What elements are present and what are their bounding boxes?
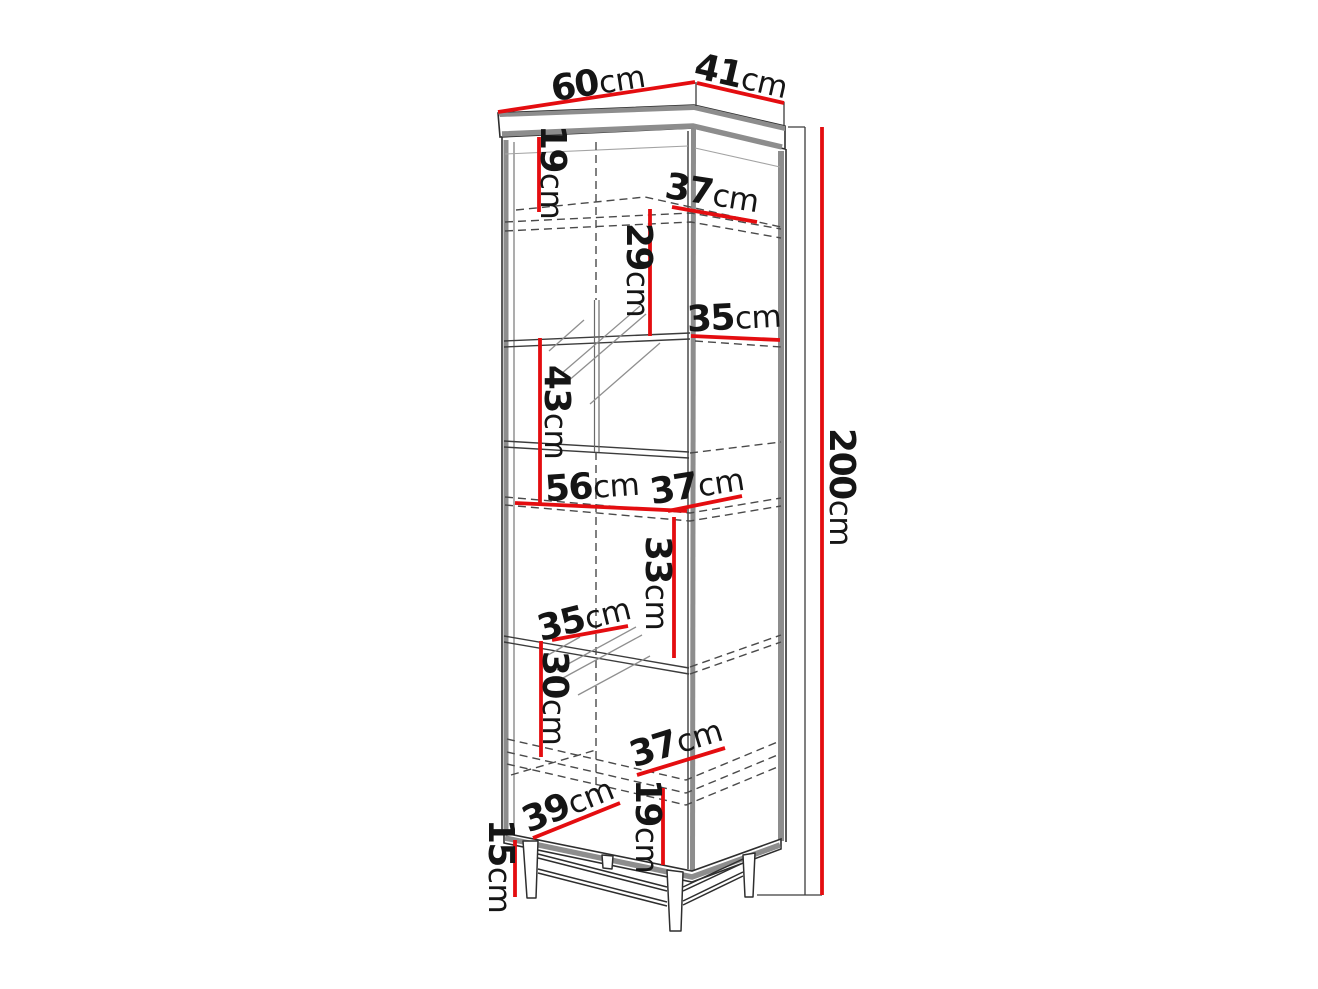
dim-value: 43 xyxy=(536,365,577,412)
dim-label-leg-height: 15cm xyxy=(482,819,518,913)
dim-value: 30 xyxy=(534,651,575,698)
dim-label-lower-section-height: 30cm xyxy=(536,651,572,745)
dim-value: 15 xyxy=(480,819,521,866)
dim-unit: cm xyxy=(535,699,571,745)
dim-unit: cm xyxy=(533,173,569,219)
dim-unit: cm xyxy=(734,299,782,337)
dim-unit: cm xyxy=(638,584,674,630)
dim-unit: cm xyxy=(822,500,858,546)
dim-label-middle-shelf-width: 56cm xyxy=(544,466,641,508)
dim-value: 29 xyxy=(618,223,659,270)
dim-unit: cm xyxy=(628,827,664,873)
dim-unit: cm xyxy=(710,177,761,220)
dim-label-display-section-height: 43cm xyxy=(538,365,574,459)
front-center-leg xyxy=(667,870,683,931)
dim-unit: cm xyxy=(695,462,746,505)
dim-label-total-height: 200cm xyxy=(823,428,859,546)
dim-value: 35 xyxy=(686,297,735,340)
dim-unit: cm xyxy=(619,271,655,317)
dim-label-glass-shelf-depth: 35cm xyxy=(686,298,782,339)
dim-label-bottom-section-height: 19cm xyxy=(629,779,665,873)
right-leg xyxy=(743,853,755,897)
dim-unit: cm xyxy=(592,467,641,506)
dim-unit: cm xyxy=(537,413,573,459)
dim-value: 60 xyxy=(548,62,601,110)
dim-unit: cm xyxy=(481,867,517,913)
dim-label-upper-section-height: 29cm xyxy=(620,223,656,317)
back-corner-edge xyxy=(595,300,600,452)
dim-unit: cm xyxy=(596,59,647,102)
diagram-canvas: 60cm 41cm 19cm 37cm 29cm 35cm 43cm 56cm … xyxy=(0,0,1318,989)
dim-value: 33 xyxy=(637,536,678,583)
dim-value: 37 xyxy=(662,166,715,214)
dim-value: 19 xyxy=(627,779,668,826)
dim-label-lower-display-height: 33cm xyxy=(639,536,675,630)
dim-value: 37 xyxy=(647,465,700,513)
dim-label-top-section-height: 19cm xyxy=(534,125,570,219)
front-left-leg xyxy=(523,841,538,898)
dim-value: 200 xyxy=(821,428,862,499)
rear-leg xyxy=(602,855,613,869)
dim-value: 19 xyxy=(532,125,573,172)
dim-value: 56 xyxy=(543,466,593,510)
